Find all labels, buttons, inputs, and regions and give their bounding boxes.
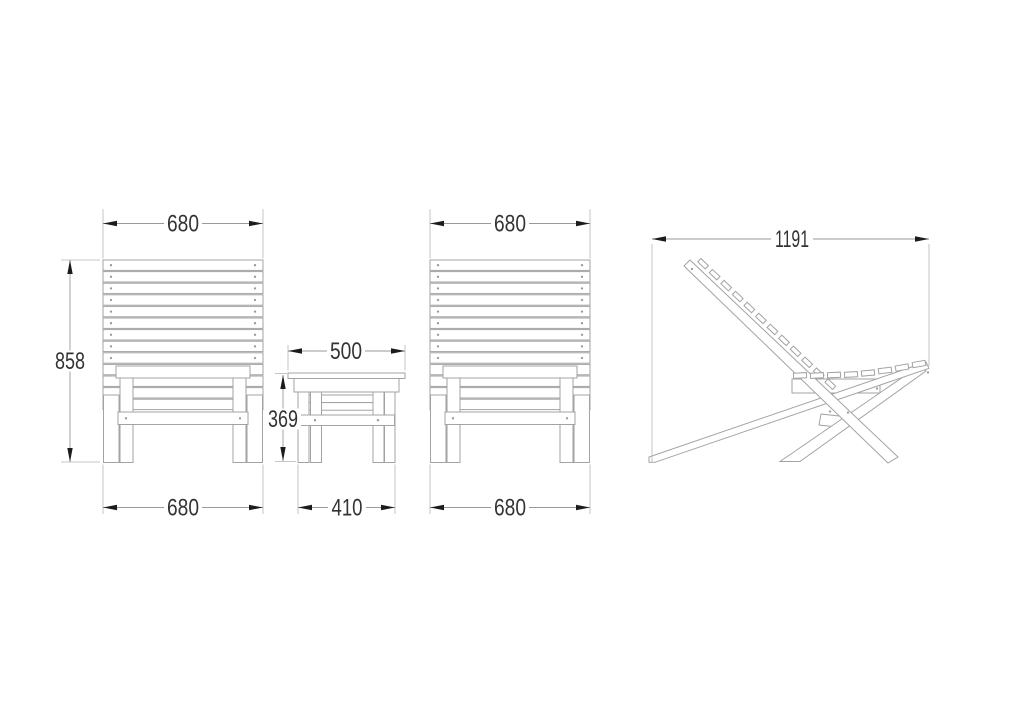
arrowhead — [576, 505, 590, 510]
screw-dot — [581, 310, 583, 312]
screw-dot — [254, 345, 256, 347]
backrest-slat — [430, 306, 590, 316]
table-leg — [373, 392, 384, 463]
screw-dot — [110, 357, 112, 359]
back-slat-edge — [779, 335, 790, 345]
dim-value-table-bottom: 410 — [332, 495, 363, 522]
table-rail — [298, 415, 395, 426]
backrest-slat — [103, 272, 263, 282]
backrest-slat — [430, 330, 590, 340]
backrest-slat — [430, 295, 590, 305]
dim-value-chair-right-top: 680 — [494, 211, 526, 238]
bolt-dot — [847, 411, 849, 413]
table-apron — [294, 379, 399, 393]
backrest-slat — [103, 283, 263, 293]
back-slat-edge — [744, 302, 755, 312]
backrest-slat — [103, 306, 263, 316]
seat-slat-edge — [793, 373, 806, 379]
screw-dot — [437, 264, 439, 266]
backrest-slat — [103, 318, 263, 328]
screw-dot — [437, 276, 439, 278]
screw-dot — [437, 310, 439, 312]
dimension-chair-left-width-top: 680 — [164, 211, 202, 238]
dimension-chair-right-width-bottom: 680 — [491, 495, 529, 522]
rear-leg — [247, 395, 263, 463]
screw-dot — [110, 299, 112, 301]
dim-value-side-depth: 1191 — [775, 226, 809, 253]
dimension-side-depth: 1191 — [771, 226, 813, 253]
arrowhead — [915, 236, 929, 241]
dimension-chair-right-width-top: 680 — [491, 211, 529, 238]
back-slat-edge — [721, 280, 732, 290]
dim-value-chair-left-top: 680 — [167, 211, 199, 238]
bolt-dot — [829, 410, 831, 412]
bolt-dot — [927, 371, 929, 373]
backrest-slat — [430, 283, 590, 293]
screw-dot — [581, 334, 583, 336]
arrowhead — [288, 348, 302, 353]
table-leg — [311, 392, 322, 463]
screw-dot — [254, 287, 256, 289]
arrowhead — [249, 505, 263, 510]
dim-value-chair-left-height: 858 — [55, 348, 85, 375]
backrest-slat — [430, 260, 590, 270]
arrowhead — [576, 221, 590, 226]
screw-dot — [254, 357, 256, 359]
arrowhead — [280, 375, 285, 389]
view-chair-front-right — [430, 260, 590, 463]
screw-dot — [110, 322, 112, 324]
screw-dot — [254, 334, 256, 336]
seat-rail — [118, 412, 248, 425]
screw-dot — [110, 345, 112, 347]
table-top — [288, 373, 405, 379]
dimension-table-width-top: 500 — [327, 338, 365, 365]
backrest-slat — [103, 341, 263, 351]
screw-dot — [110, 334, 112, 336]
armrest — [443, 366, 577, 378]
screw-dot — [254, 322, 256, 324]
back-slat-edge — [790, 346, 801, 356]
bolt-dot — [876, 387, 878, 389]
arrowhead — [430, 505, 444, 510]
screw-dot — [581, 357, 583, 359]
arrowhead — [430, 221, 444, 226]
screw-dot — [437, 299, 439, 301]
bolt-dot — [691, 268, 693, 270]
rear-leg — [574, 395, 590, 463]
armrest — [116, 366, 250, 378]
arrowhead — [280, 447, 285, 461]
dimension-chair-left-height: 858 — [52, 348, 88, 375]
screw-dot — [110, 310, 112, 312]
rear-leg — [104, 395, 120, 463]
screw-dot — [581, 264, 583, 266]
screw-dot — [437, 334, 439, 336]
arrowhead — [103, 221, 117, 226]
arrowhead — [67, 260, 72, 274]
backrest-slat — [430, 341, 590, 351]
back-rail-side — [684, 260, 898, 463]
seat-slat-edge — [810, 373, 823, 379]
view-chair-front-left — [103, 260, 263, 463]
arrowhead — [652, 236, 666, 241]
dimension-table-width-bottom: 410 — [328, 495, 366, 522]
rear-leg — [431, 395, 447, 463]
dim-value-table-height: 369 — [268, 406, 298, 433]
seat-slat-edge — [878, 367, 892, 374]
arrowhead — [103, 505, 117, 510]
screw-dot — [239, 417, 241, 419]
screw-dot — [110, 287, 112, 289]
screw-dot — [566, 417, 568, 419]
dim-value-chair-right-bottom: 680 — [494, 495, 526, 522]
screw-dot — [254, 310, 256, 312]
dimension-chair-left-width-bottom: 680 — [164, 495, 202, 522]
screw-dot — [437, 322, 439, 324]
screw-dot — [377, 419, 379, 421]
view-table-front — [288, 373, 405, 463]
screw-dot — [110, 276, 112, 278]
backrest-slat — [430, 353, 590, 363]
back-slat-edge — [732, 291, 743, 301]
back-slat-edge — [756, 313, 767, 323]
screw-dot — [581, 287, 583, 289]
backrest-slat — [103, 353, 263, 363]
screw-dot — [452, 417, 454, 419]
screw-dot — [254, 264, 256, 266]
seat-slat-edge — [844, 372, 857, 378]
dim-value-chair-left-bottom: 680 — [167, 495, 199, 522]
backrest-slat — [103, 295, 263, 305]
arrowhead — [381, 505, 395, 510]
back-slat-edge — [698, 258, 709, 268]
screw-dot — [254, 299, 256, 301]
screw-dot — [581, 299, 583, 301]
arrowhead — [67, 448, 72, 462]
back-slat-edge — [709, 269, 720, 279]
screw-dot — [581, 345, 583, 347]
screw-dot — [437, 287, 439, 289]
arrowhead — [249, 221, 263, 226]
screw-dot — [314, 419, 316, 421]
screw-dot — [581, 276, 583, 278]
back-slat-edge — [802, 357, 813, 367]
table-leg — [385, 392, 396, 463]
backrest-slat — [103, 260, 263, 270]
screw-dot — [125, 417, 127, 419]
backrest-slat — [430, 318, 590, 328]
screw-dot — [437, 357, 439, 359]
backrest-slat — [103, 330, 263, 340]
screw-dot — [581, 322, 583, 324]
back-slat-edge — [767, 324, 778, 334]
screw-dot — [437, 345, 439, 347]
dimension-table-height: 369 — [265, 406, 301, 433]
seat-slat-edge — [827, 372, 840, 378]
dim-value-table-top: 500 — [330, 338, 362, 365]
screw-dot — [110, 264, 112, 266]
seat-slat-edge — [861, 370, 874, 376]
arrowhead — [298, 505, 312, 510]
view-chair-side-profile — [649, 258, 929, 463]
furniture-views-layer — [103, 258, 929, 463]
technical-drawing-canvas: 680 858 680 500 369 410 680 680 — [0, 0, 1024, 724]
seat-rail — [445, 412, 575, 425]
arrowhead — [391, 348, 405, 353]
backrest-slat — [430, 272, 590, 282]
screw-dot — [254, 276, 256, 278]
